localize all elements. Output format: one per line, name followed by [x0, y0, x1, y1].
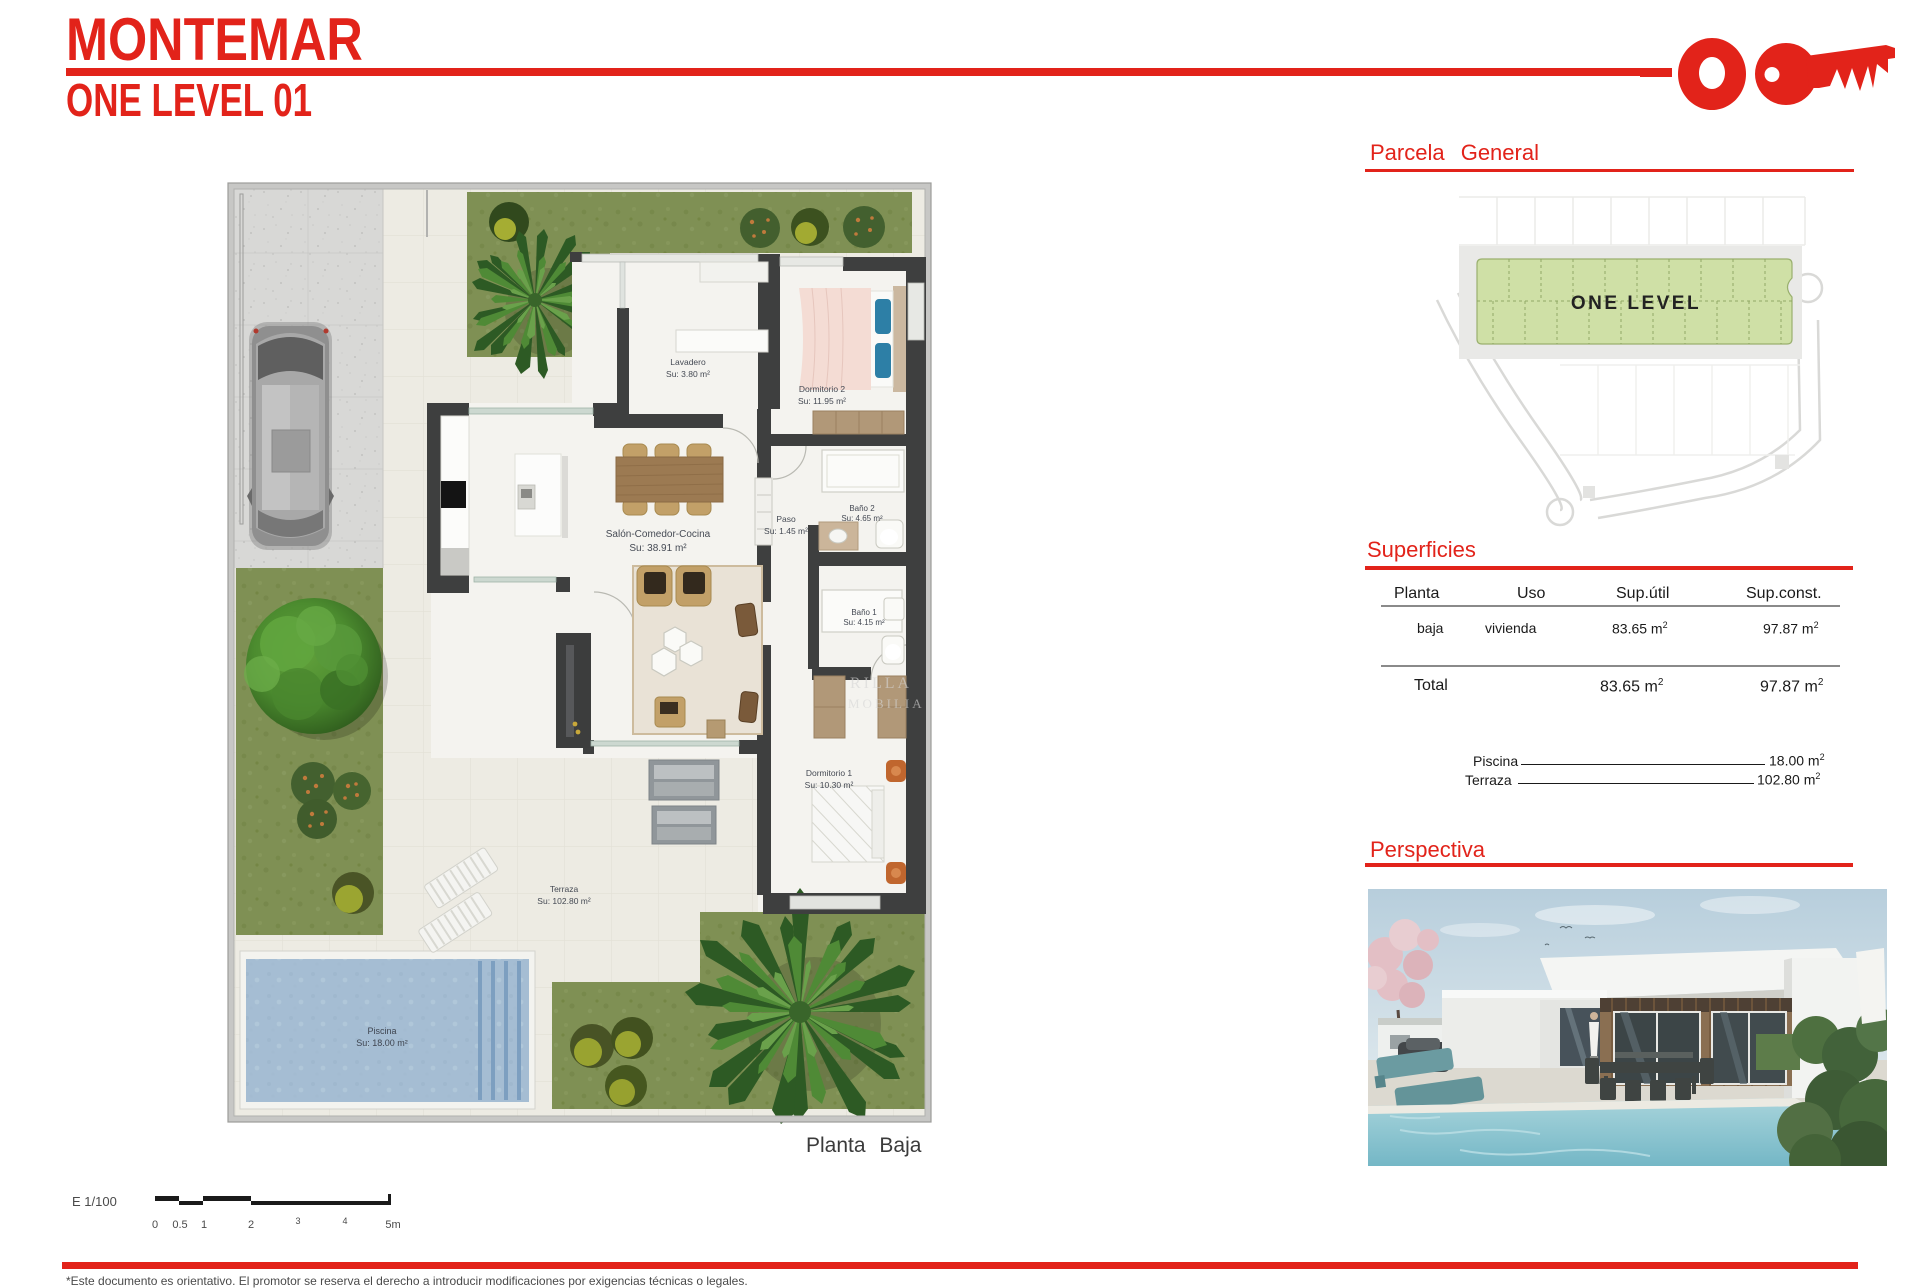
svg-text:Paso: Paso: [776, 514, 796, 524]
svg-text:Dormitorio 1: Dormitorio 1: [806, 768, 853, 778]
svg-text:2: 2: [248, 1219, 254, 1231]
svg-text:5m: 5m: [385, 1219, 400, 1231]
svg-text:4: 4: [342, 1216, 347, 1226]
svg-text:1: 1: [201, 1219, 207, 1231]
svg-text:MOBILIA: MOBILIA: [848, 696, 925, 711]
svg-text:Su: 18.00 m²: Su: 18.00 m²: [356, 1038, 408, 1048]
svg-text:Su: 102.80 m²: Su: 102.80 m²: [537, 896, 591, 906]
svg-text:Su: 1.45 m²: Su: 1.45 m²: [764, 526, 808, 536]
svg-text:3: 3: [295, 1216, 300, 1226]
svg-text:E 1/100: E 1/100: [72, 1194, 117, 1209]
svg-text:Su: 4.65 m²: Su: 4.65 m²: [841, 514, 883, 523]
svg-text:Baño 2: Baño 2: [849, 504, 875, 513]
svg-text:0.5: 0.5: [172, 1219, 187, 1231]
svg-text:Dormitorio 2: Dormitorio 2: [799, 384, 846, 394]
svg-text:Baño 1: Baño 1: [851, 608, 877, 617]
svg-text:RILLA: RILLA: [850, 675, 912, 692]
svg-text:Salón-Comedor-Cocina: Salón-Comedor-Cocina: [606, 529, 711, 540]
svg-text:Piscina: Piscina: [367, 1026, 396, 1036]
svg-text:Su: 38.91 m²: Su: 38.91 m²: [629, 543, 687, 554]
svg-text:ONE LEVEL: ONE LEVEL: [1571, 293, 1701, 314]
svg-text:Su: 10.30 m²: Su: 10.30 m²: [805, 780, 854, 790]
svg-text:Terraza: Terraza: [550, 884, 579, 894]
svg-text:Su: 3.80 m²: Su: 3.80 m²: [666, 369, 710, 379]
svg-text:Su: 4.15 m²: Su: 4.15 m²: [843, 618, 885, 627]
svg-text:0: 0: [152, 1219, 158, 1231]
svg-text:Su: 11.95 m²: Su: 11.95 m²: [798, 396, 846, 406]
svg-text:Lavadero: Lavadero: [670, 357, 706, 367]
